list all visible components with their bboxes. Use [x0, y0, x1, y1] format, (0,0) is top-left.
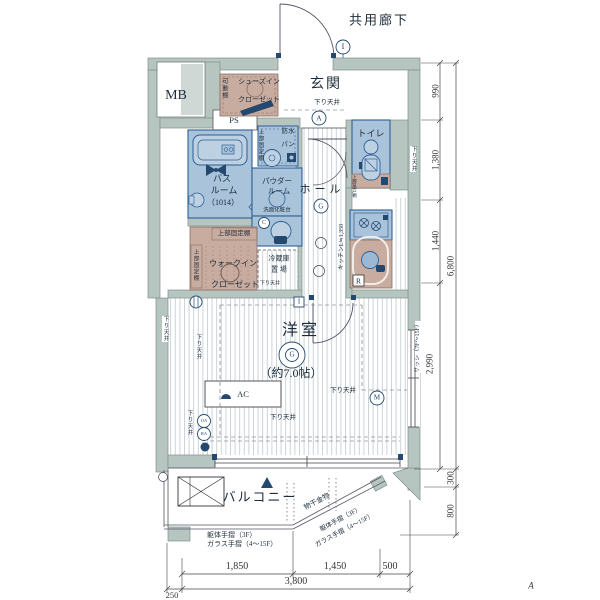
dim-1850: 1,850	[226, 562, 249, 572]
dim-1380: 1,380	[432, 150, 441, 170]
washer-shelf-note: 上部固定棚	[257, 129, 263, 162]
balcony-label: バルコニー	[223, 491, 298, 504]
entrance-ceiling-note: 下り天井	[314, 100, 340, 107]
mark-c: C	[262, 220, 266, 226]
sash-note: サッシ（7F～15F）	[415, 321, 421, 373]
meter-box-label: MB	[165, 89, 187, 103]
room-label: 洋室	[282, 323, 320, 339]
room-size-label: （約7.0帖）	[259, 367, 322, 379]
room-ceiling-note-right: 下り天井	[330, 388, 356, 395]
movable-shelf-note: 可動棚	[221, 78, 227, 99]
corridor-label: 共用廊下	[349, 14, 409, 27]
handrail-note-1: 躯体手摺（3F）	[207, 532, 256, 539]
handrail-note-2: ガラス手摺（4～15F）	[207, 541, 277, 548]
dim-800: 800	[447, 504, 456, 518]
washer-pan-label-2: パン	[281, 142, 294, 149]
dim-500: 500	[383, 562, 398, 572]
ac-label: AC	[237, 390, 249, 399]
left-ceiling-note-3: 下り天井	[186, 410, 192, 436]
fridge-label-1: 冷蔵庫	[269, 256, 290, 263]
toilet-ceiling-note: 下り天井	[410, 146, 416, 172]
floor-plan: 共用廊下 I MB PS 玄関 下り天井 シューズイン クローゼット 可動棚 防…	[0, 0, 600, 600]
dim-2990: 2,990	[426, 354, 435, 374]
wic-shelf-top-note: 上部固定棚	[218, 231, 251, 238]
evacuation-hatch	[178, 477, 224, 506]
dim-1440: 1,440	[432, 231, 441, 251]
dim-250: 250	[166, 591, 179, 600]
wic-label-1: ウォークイン	[209, 260, 257, 268]
wic-shelf-left-note: 上部固定棚	[192, 249, 198, 282]
mark-g-hall: G	[318, 202, 323, 210]
mark-i-box: I	[298, 299, 300, 306]
mark-oa: OA	[201, 419, 208, 424]
fridge-ceiling-note: 下り天井	[260, 282, 280, 287]
bathroom-label-1: バス	[213, 175, 231, 184]
wic-label-2: クローゼット	[211, 281, 259, 289]
left-ceiling-note-1: 下り天井	[162, 316, 168, 342]
toilet-icon	[364, 140, 378, 154]
left-ceiling-note-2: 下り天井	[195, 334, 201, 360]
mark-ra: RA	[201, 432, 207, 437]
shoes-closet-label-1: シューズイン	[238, 79, 280, 86]
kitchen-stove	[350, 210, 392, 240]
mark-m: M	[374, 395, 380, 402]
fridge-label-2: 置 場	[271, 267, 287, 274]
room-ceiling-note-bottom: 下り天井	[270, 415, 296, 422]
r-mark: R	[356, 277, 361, 285]
kitchen-note: キッチンL≒1,350	[339, 224, 345, 270]
dim-990: 990	[432, 84, 441, 98]
powder-room-label-1: パウダー	[262, 177, 292, 185]
dim-1450: 1,450	[324, 562, 347, 572]
shoes-closet-label-2: クローゼット	[238, 97, 280, 104]
direction-triangle	[261, 477, 273, 488]
bathroom-size-label: （1014）	[207, 199, 239, 207]
entrance-label: 玄関	[310, 78, 342, 92]
powder-room-label-2: ルーム	[268, 187, 290, 195]
bathroom-label-2: ルーム	[211, 187, 238, 196]
mark-g-room: G	[289, 352, 294, 359]
mark-a: A	[316, 114, 321, 122]
section-mark: A	[528, 582, 534, 591]
dim-3800: 3,800	[285, 577, 308, 587]
toilet-label: トイレ	[357, 130, 384, 139]
mark-i-top: I	[342, 43, 345, 51]
washer-pan-label-1: 防水	[282, 129, 295, 136]
hall-label: ホール	[300, 185, 345, 196]
dim-6800: 6,800	[447, 256, 456, 276]
pipe-space-label: PS	[229, 116, 238, 125]
vanity-label: 洗面化粧台	[263, 208, 291, 214]
dim-300: 300	[447, 471, 456, 485]
cupboard-note: 上部吊戸棚	[352, 175, 357, 198]
